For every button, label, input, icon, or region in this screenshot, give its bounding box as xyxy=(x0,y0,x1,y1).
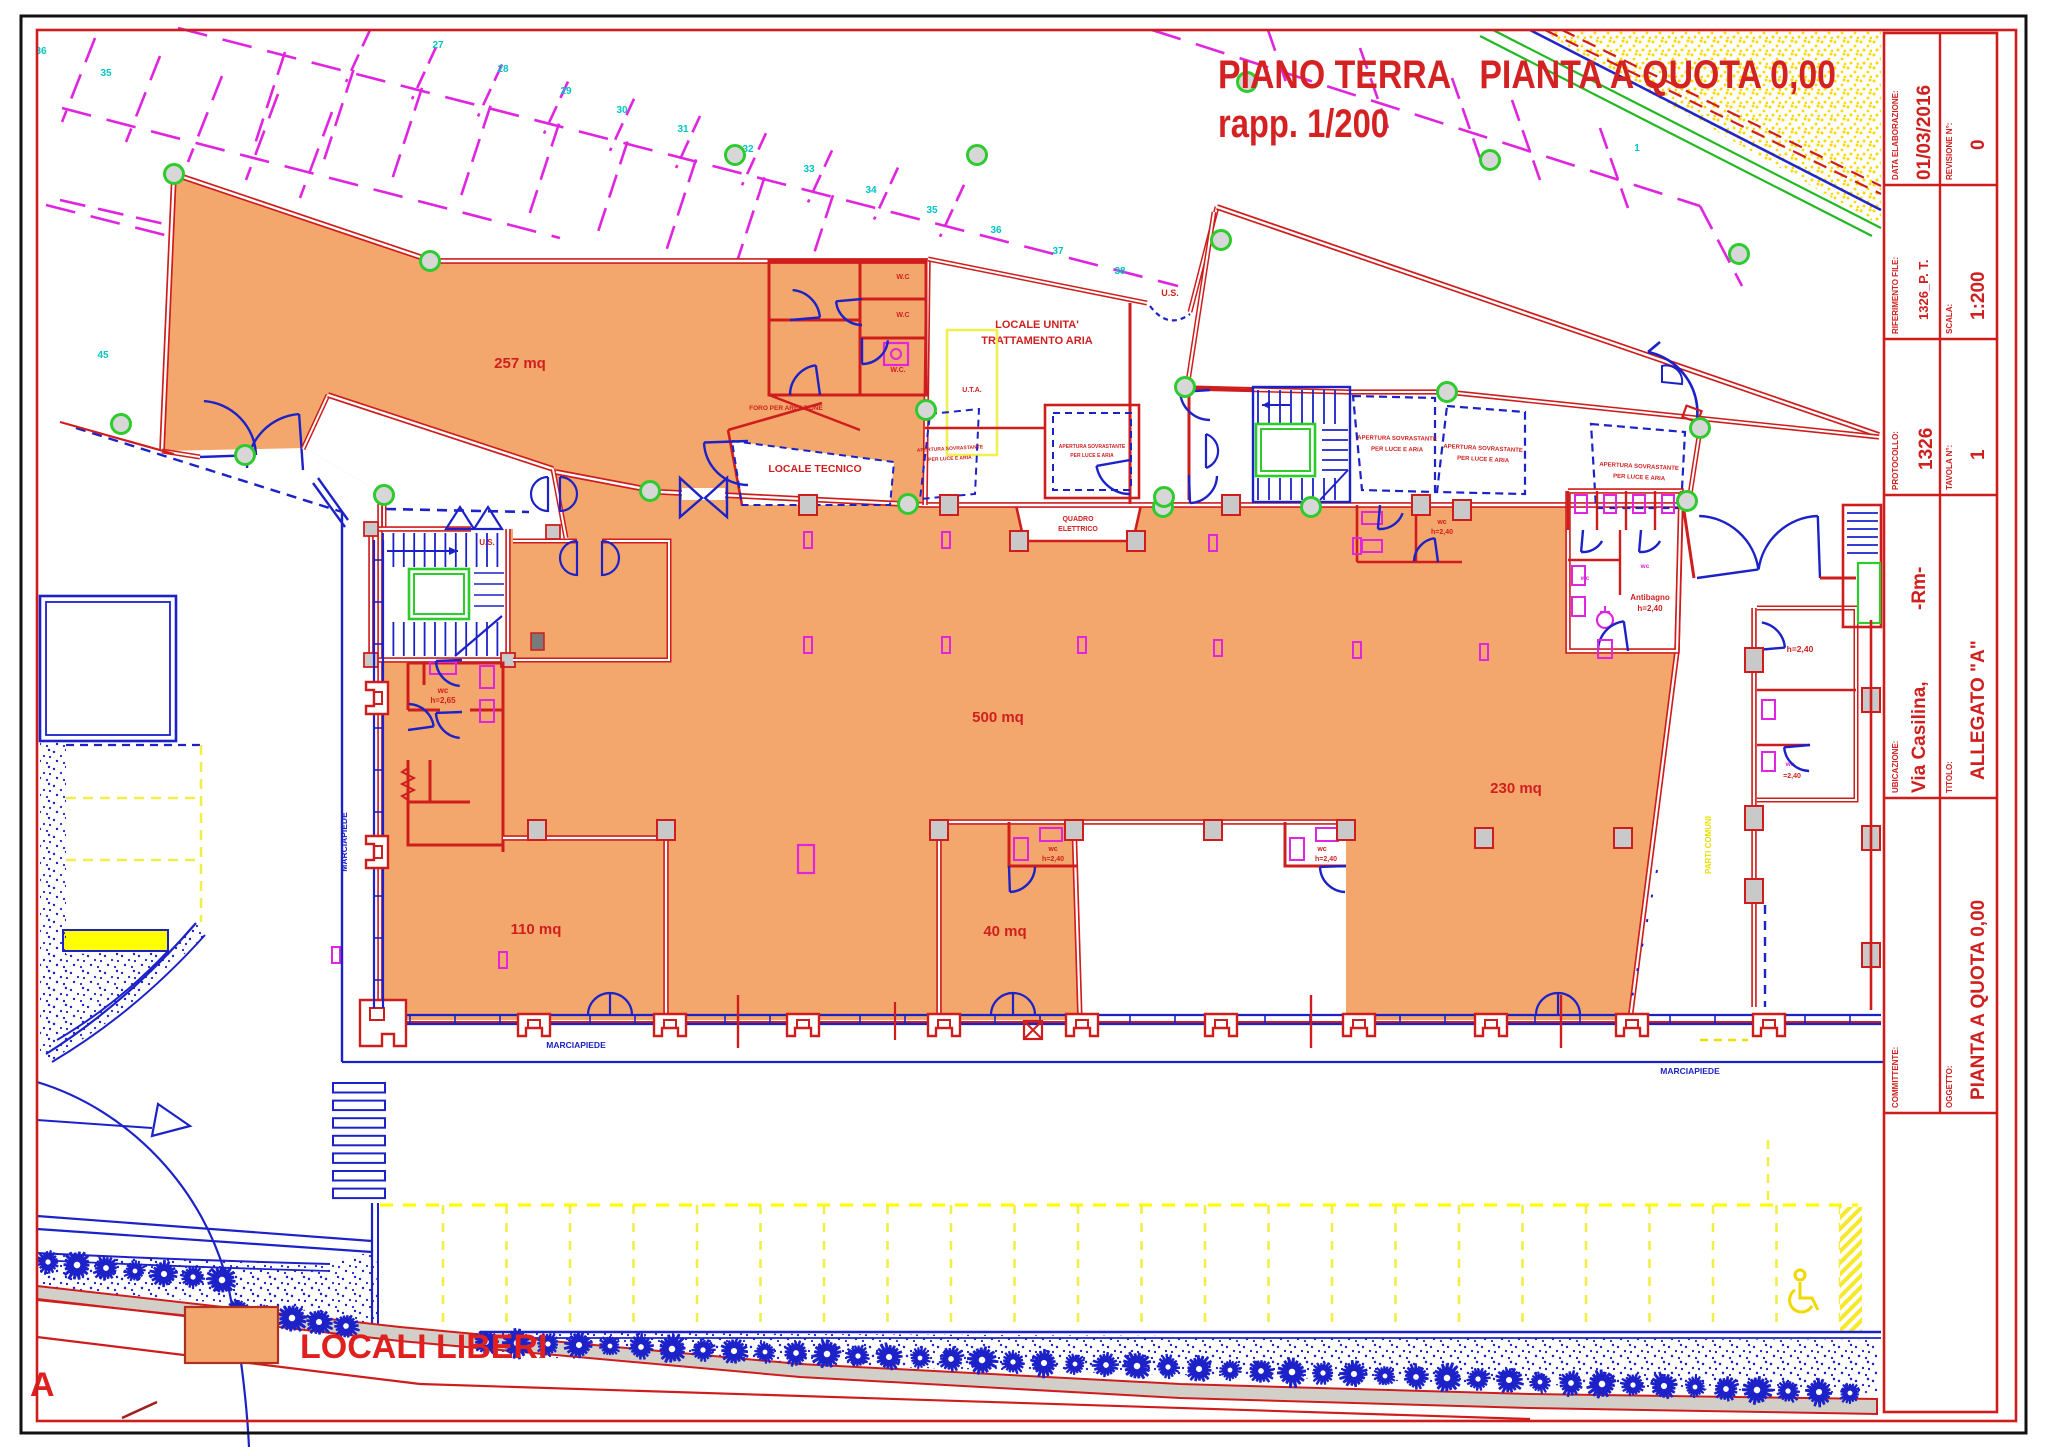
svg-text:PIANTA A QUOTA 0,00: PIANTA A QUOTA 0,00 xyxy=(1968,900,1989,1100)
svg-text:30: 30 xyxy=(616,105,628,116)
svg-text:01/03/2016: 01/03/2016 xyxy=(1914,85,1935,180)
svg-text:ALLEGATO "A": ALLEGATO "A" xyxy=(1968,640,1989,780)
svg-text:29: 29 xyxy=(560,86,572,97)
svg-text:W.C: W.C xyxy=(896,312,909,319)
svg-text:TITOLO:: TITOLO: xyxy=(1945,761,1954,793)
svg-text:ELETTRICO: ELETTRICO xyxy=(1058,526,1098,533)
svg-text:APERTURA SOVRASTANTE: APERTURA SOVRASTANTE xyxy=(1059,444,1126,450)
svg-text:h=2,65: h=2,65 xyxy=(430,696,456,705)
svg-text:LOCALE TECNICO: LOCALE TECNICO xyxy=(768,463,861,475)
svg-text:LOCALI LIBERI: LOCALI LIBERI xyxy=(300,1328,547,1366)
svg-text:UBICAZIONE:: UBICAZIONE: xyxy=(1891,741,1900,793)
svg-text:RIFERIMENTO FILE:: RIFERIMENTO FILE: xyxy=(1891,257,1900,334)
svg-text:Antibagno: Antibagno xyxy=(1630,593,1670,602)
svg-text:wc: wc xyxy=(437,686,449,695)
svg-text:REVISIONE N°:: REVISIONE N°: xyxy=(1945,123,1954,180)
svg-text:MARCIAPIEDE: MARCIAPIEDE xyxy=(1660,1066,1720,1076)
svg-text:wc: wc xyxy=(1047,846,1057,853)
svg-text:35: 35 xyxy=(100,68,112,79)
svg-text:h=2,40: h=2,40 xyxy=(1787,644,1814,654)
svg-text:1:200: 1:200 xyxy=(1968,271,1989,320)
svg-text:1: 1 xyxy=(1634,143,1640,154)
svg-text:U.S.: U.S. xyxy=(1161,288,1179,298)
svg-text:1: 1 xyxy=(1968,449,1989,460)
svg-text:36: 36 xyxy=(990,225,1002,236)
svg-text:W.C: W.C xyxy=(896,274,909,281)
svg-text:33: 33 xyxy=(803,164,815,175)
svg-text:PIANO TERRA PIANTA A QUOTA 0: PIANO TERRA PIANTA A QUOTA 0,00 xyxy=(1218,53,1836,97)
svg-text:28: 28 xyxy=(497,64,509,75)
svg-text:1326_P. T.: 1326_P. T. xyxy=(1916,260,1931,320)
svg-text:PER LUCE E ARIA: PER LUCE E ARIA xyxy=(1070,453,1114,459)
svg-text:MARCIAPIEDE: MARCIAPIEDE xyxy=(546,1040,606,1050)
svg-text:TAVOLA N°:: TAVOLA N°: xyxy=(1945,445,1954,490)
svg-text:QUADRO: QUADRO xyxy=(1062,516,1094,523)
svg-text:FORO PER AREAZIONE: FORO PER AREAZIONE xyxy=(749,405,823,412)
svg-text:wc: wc xyxy=(1316,846,1326,853)
svg-text:Via Casilina,: Via Casilina, xyxy=(1909,681,1930,793)
svg-text:40 mq: 40 mq xyxy=(983,923,1026,940)
svg-text:257 mq: 257 mq xyxy=(494,355,546,372)
svg-text:rapp. 1/200: rapp. 1/200 xyxy=(1218,102,1389,146)
svg-text:37: 37 xyxy=(1052,246,1064,257)
svg-text:1326: 1326 xyxy=(1916,428,1937,470)
svg-text:45: 45 xyxy=(97,350,109,361)
svg-text:h=2,40: h=2,40 xyxy=(1637,604,1663,613)
svg-text:h=2,40: h=2,40 xyxy=(1315,856,1337,863)
svg-text:500 mq: 500 mq xyxy=(972,709,1024,726)
svg-text:38: 38 xyxy=(1114,266,1126,277)
svg-text:W.C.: W.C. xyxy=(890,367,905,374)
svg-text:PARTI COMUNI: PARTI COMUNI xyxy=(1704,816,1713,874)
svg-text:LOCALE UNITA': LOCALE UNITA' xyxy=(995,319,1079,331)
svg-text:110 mq: 110 mq xyxy=(511,921,562,938)
svg-text:OGGETTO:: OGGETTO: xyxy=(1945,1065,1954,1108)
svg-text:h=2,40: h=2,40 xyxy=(1042,856,1064,863)
svg-text:h=2,40: h=2,40 xyxy=(1431,529,1453,536)
svg-text:0: 0 xyxy=(1968,139,1989,150)
svg-text:U.T.A.: U.T.A. xyxy=(962,387,982,394)
svg-text:U.S.: U.S. xyxy=(479,538,495,547)
svg-text:PROTOCOLLO:: PROTOCOLLO: xyxy=(1891,431,1900,490)
svg-text:A: A xyxy=(30,1366,55,1404)
svg-text:DATA ELABORAZIONE:: DATA ELABORAZIONE: xyxy=(1891,90,1900,180)
svg-text:-Rm-: -Rm- xyxy=(1909,567,1930,610)
svg-text:wc: wc xyxy=(1640,563,1650,570)
svg-text:27: 27 xyxy=(432,40,444,51)
svg-text:wc: wc xyxy=(1436,519,1446,526)
svg-text:PER LUCE E ARIA: PER LUCE E ARIA xyxy=(1371,447,1424,454)
svg-text:SCALA:: SCALA: xyxy=(1945,304,1954,334)
svg-text:COMMITTENTE:: COMMITTENTE: xyxy=(1891,1047,1900,1108)
svg-text:=2,40: =2,40 xyxy=(1783,773,1801,780)
svg-text:35: 35 xyxy=(926,205,938,216)
svg-text:34: 34 xyxy=(865,185,877,196)
svg-text:MARCIAPIEDE: MARCIAPIEDE xyxy=(339,812,349,872)
svg-text:31: 31 xyxy=(677,124,689,135)
svg-text:230 mq: 230 mq xyxy=(1490,780,1542,797)
